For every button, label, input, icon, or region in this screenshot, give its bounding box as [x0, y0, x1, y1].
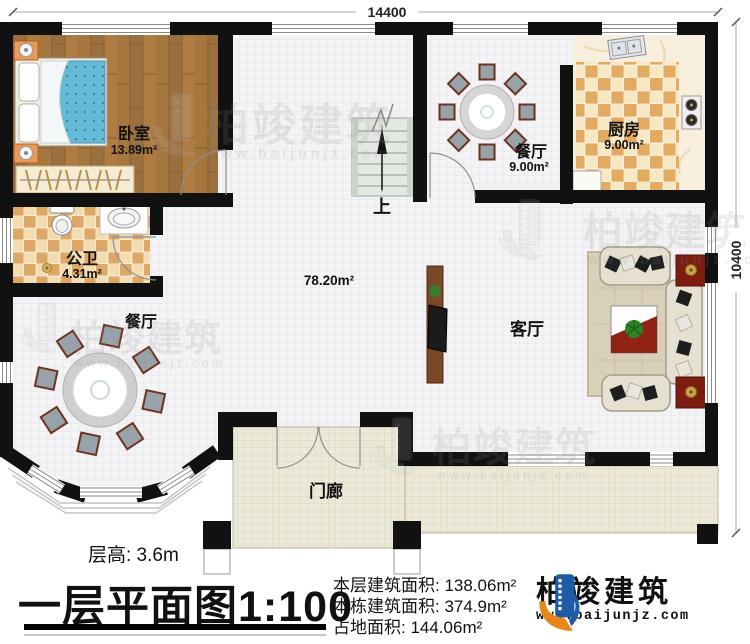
porch-label: 门廊 [309, 481, 343, 501]
watermark-2: 柏竣建筑 www.baijunjz.com [500, 200, 750, 267]
footprint-area-line: 占地面积: 144.06m² [333, 613, 482, 638]
wardrobe [16, 166, 134, 193]
living-label: 客厅 [509, 319, 544, 339]
watermark-name: 柏竣建筑 [70, 317, 222, 359]
bathroom-label: 公卫 [66, 250, 98, 268]
brand-logo-icon [536, 569, 584, 637]
toilet [50, 203, 74, 235]
tv [428, 305, 447, 352]
title-underline-shadow [24, 634, 326, 636]
dimension-top-value: 14400 [368, 4, 407, 20]
nightstand-top [14, 41, 38, 60]
dining-small-area: 9.00m² [509, 160, 549, 174]
dining-small-label: 餐厅 [514, 142, 547, 161]
bathroom-area: 4.31m² [62, 267, 102, 281]
watermark-url: www.baijunjz.com [587, 251, 750, 267]
brand-logo: 柏竣建筑 www.baijunjz.com [536, 569, 690, 624]
bedroom-area: 13.89m² [111, 143, 158, 157]
coffee-table [611, 306, 657, 353]
floor-drain [43, 264, 52, 273]
dimension-right: 10400 [728, 18, 744, 537]
dimension-top: 14400 [9, 3, 722, 20]
kitchen-label: 厨房 [608, 120, 640, 139]
plant-icon [429, 285, 441, 297]
floor-plan-page: 卧室 13.89m² 公卫 4.31m² 餐厅 餐厅 9.00m² 厨房 9.0… [0, 0, 750, 644]
bedroom-label: 卧室 [118, 124, 150, 143]
watermark-1: 柏竣建筑 www.baijunjz.com [150, 94, 393, 161]
stairs-up-label: 上 [373, 197, 391, 217]
title-underline [24, 624, 326, 630]
kitchen-appliance [573, 171, 601, 193]
stove [682, 96, 701, 129]
watermark-name: 柏竣建筑 [432, 426, 596, 470]
watermark-name: 柏竣建筑 [205, 101, 393, 150]
nightstand-bottom [14, 144, 38, 163]
floor-height-label: 层高: 3.6m [88, 540, 179, 567]
watermark-url: www.baijunjz.com [436, 468, 589, 482]
hall-area-label: 78.20m² [304, 273, 355, 288]
watermark-url: www.baijunjz.com [205, 145, 391, 161]
watermark-3: 柏竣建筑 www.baijunjz.com [374, 418, 596, 482]
kitchen-area: 9.00m² [604, 138, 644, 152]
side-table-bottom [676, 377, 706, 408]
watermark-name: 柏竣建筑 [583, 210, 747, 254]
bed [15, 58, 107, 146]
dimension-right-value: 10400 [728, 240, 744, 279]
watermark-url: www.baijunjz.com [73, 356, 226, 370]
bathroom-sink [100, 203, 148, 234]
